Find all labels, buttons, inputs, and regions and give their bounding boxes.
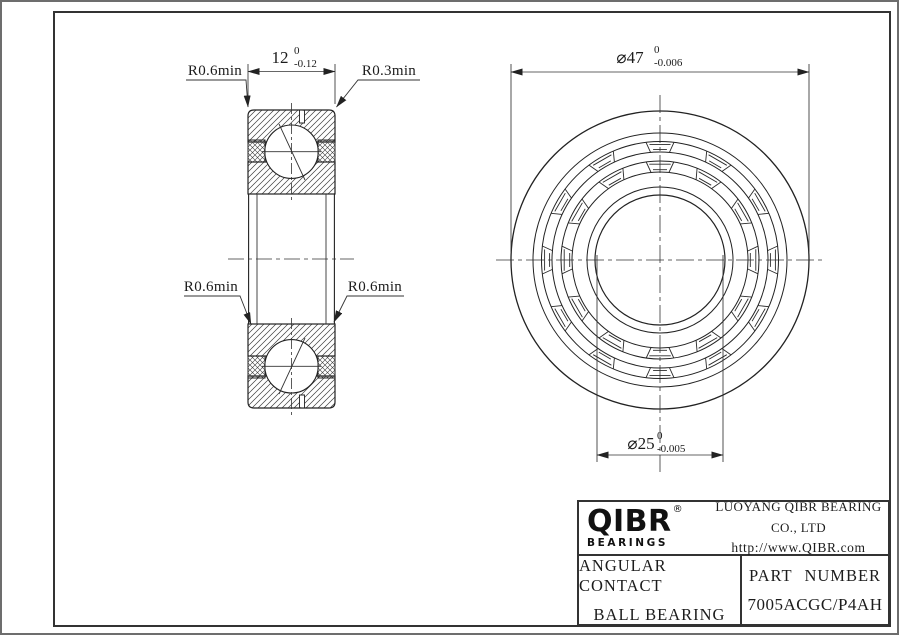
radius-label-bottom-left: R0.6min bbox=[184, 279, 238, 295]
width-dim-tol-lower: -0.12 bbox=[294, 58, 317, 70]
product-type-cell: ANGULAR CONTACT BALL BEARING bbox=[579, 556, 742, 625]
section-view bbox=[228, 103, 354, 415]
part-number-cell: PART NUMBER 7005ACGC/P4AH bbox=[742, 556, 888, 625]
od-dim-value: ⌀47 bbox=[616, 48, 644, 67]
cage-section-bottom-left bbox=[248, 356, 265, 378]
company-info: LUOYANG QIBR BEARING CO., LTD http://www… bbox=[709, 497, 888, 558]
brand-subtitle: BEARINGS bbox=[587, 538, 709, 549]
radius-label-bottom-right: R0.6min bbox=[348, 279, 402, 295]
od-dim-tol-upper: 0 bbox=[654, 44, 660, 56]
bore-dim-value: ⌀25 bbox=[627, 434, 654, 453]
bore-dim-tol-upper: 0 bbox=[657, 430, 663, 442]
cage-section-top-left bbox=[248, 140, 265, 162]
part-number-label: PART NUMBER bbox=[749, 566, 881, 586]
title-block-detail-row: ANGULAR CONTACT BALL BEARING PART NUMBER… bbox=[579, 556, 888, 625]
title-block-header-row: QIBR ® BEARINGS LUOYANG QIBR BEARING CO.… bbox=[579, 502, 888, 556]
outer-ring-relief-notch-bottom bbox=[300, 395, 305, 407]
brand-logo: QIBR ® BEARINGS bbox=[579, 507, 709, 549]
outer-ring-relief-notch-top bbox=[300, 111, 305, 123]
radius-label-top-left: R0.6min bbox=[188, 63, 242, 79]
registered-trademark-symbol: ® bbox=[673, 505, 683, 515]
company-name: LUOYANG QIBR BEARING CO., LTD bbox=[709, 497, 888, 537]
width-dimension bbox=[248, 64, 335, 104]
front-view bbox=[496, 95, 824, 472]
part-number-value: 7005ACGC/P4AH bbox=[748, 595, 883, 615]
brand-name: QIBR bbox=[587, 507, 672, 537]
width-dim-value: 12 bbox=[272, 48, 289, 67]
product-type-line1: ANGULAR CONTACT bbox=[579, 556, 740, 596]
drawing-sheet: 12 0 -0.12 R0.6min R0.3min R0.6min R0.6m… bbox=[0, 0, 900, 636]
title-block: QIBR ® BEARINGS LUOYANG QIBR BEARING CO.… bbox=[577, 500, 890, 626]
od-dim-tol-lower: -0.006 bbox=[654, 57, 683, 69]
radius-label-top-right: R0.3min bbox=[362, 63, 416, 79]
product-type-line2: BALL BEARING bbox=[594, 605, 726, 625]
cage-section-bottom-right bbox=[318, 356, 335, 378]
cage-section-top-right bbox=[318, 140, 335, 162]
bore-dim-tol-lower: -0.005 bbox=[657, 443, 686, 455]
width-dim-tol-upper: 0 bbox=[294, 45, 300, 57]
